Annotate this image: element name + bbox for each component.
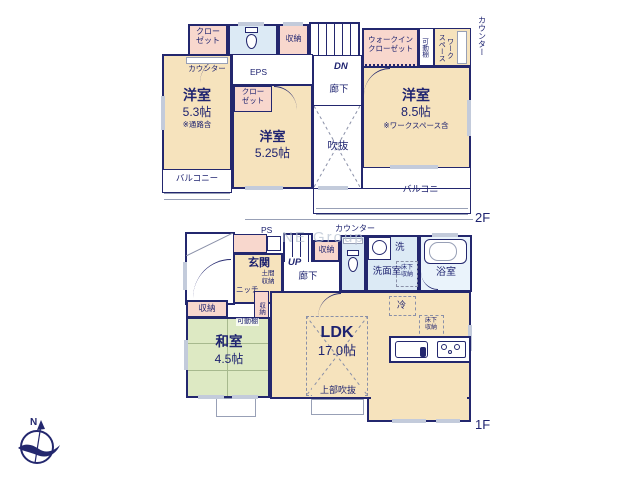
window-1f-ldk-s1 — [392, 419, 426, 423]
label-ps: PS — [261, 225, 272, 235]
label-room85-note: ※ワークスペース含 — [366, 122, 466, 131]
label-storage-west: 収納 — [188, 303, 226, 313]
bathtub-inner-icon — [429, 242, 457, 261]
label-room85-size: 8.5帖 — [372, 105, 460, 120]
label-void-2f: 吹抜 — [321, 140, 355, 152]
window-2f-storage — [283, 22, 303, 26]
ldk-seam — [371, 394, 467, 401]
label-ldk-size: 17.0帖 — [305, 343, 369, 358]
label-underfloor-wash: 床下 収納 — [397, 265, 417, 279]
window-1f-porch — [183, 262, 187, 290]
label-hallway-1f: 廊下 — [290, 271, 326, 282]
label-eps: EPS — [250, 67, 267, 77]
label-balcony-west: バルコニー — [164, 173, 230, 183]
floor-divider-line — [245, 219, 473, 220]
label-fridge: 冷 — [397, 300, 406, 311]
watermark: NE Group — [282, 229, 365, 246]
compass-north-label: N — [30, 417, 37, 428]
label-hallway-2f: 廊下 — [322, 84, 356, 95]
floorplan-canvas: クロー ゼット カウンター 収納 DN EPS 廊下 洋室 5.3帖 ※通路含 … — [0, 0, 640, 480]
label-ldk-name: LDK — [305, 324, 369, 343]
label-workspace-2f: ワーク スペース — [437, 30, 454, 66]
label-closet-525: クロー ゼット — [236, 88, 270, 106]
label-upper-void: 上部吹抜 — [312, 385, 364, 396]
label-counter-desk-2f: カウンター — [184, 65, 230, 74]
label-washer: 洗 — [395, 242, 405, 253]
compass-icon: N — [6, 412, 70, 476]
doma-storage-1f — [233, 234, 267, 253]
window-2f-525-south — [245, 186, 283, 190]
stove-burner-1 — [441, 344, 447, 350]
label-entrance: 玄関 — [238, 257, 280, 270]
toilet-icon-1f — [347, 250, 359, 256]
window-1f-washitsu-s2 — [232, 395, 258, 399]
label-washitsu-size: 4.5帖 — [202, 352, 256, 366]
window-1f-washitsu-s1 — [198, 395, 224, 399]
label-bathroom: 浴室 — [426, 267, 466, 279]
label-room85-name: 洋室 — [372, 87, 460, 104]
terrace-washitsu — [216, 398, 256, 417]
terrace-ldk — [311, 399, 364, 415]
toilet-icon-2f — [245, 27, 258, 33]
label-room525-name: 洋室 — [234, 129, 311, 144]
window-1f-bath — [432, 233, 458, 237]
window-1f-washitsu-west — [184, 340, 188, 370]
balcony-rail-west — [164, 193, 230, 200]
porch-diagonal — [186, 233, 233, 256]
label-room53-note: ※通路含 — [165, 121, 229, 130]
window-2f-toilet — [238, 22, 264, 26]
label-room525-size: 5.25帖 — [234, 146, 311, 160]
label-underfloor-kitchen: 床下 収納 — [420, 318, 442, 332]
label-closet-2f-west: クロー ゼット — [188, 27, 228, 46]
label-niche: ニッチ — [236, 286, 259, 295]
label-movable-shelf-2f: 可動棚 — [420, 31, 428, 65]
stove-burner-3 — [448, 350, 452, 354]
label-doma-storage: 土間 収納 — [254, 270, 282, 285]
washer-drum-icon — [372, 240, 387, 255]
label-room53-name: 洋室 — [165, 87, 229, 104]
balcony-rail-east — [316, 208, 468, 215]
label-washitsu-name: 和室 — [202, 334, 256, 350]
label-room53-size: 5.3帖 — [165, 105, 229, 119]
label-balcony-east: バルコニー — [390, 184, 460, 195]
desk-counter-2f — [186, 57, 228, 64]
label-stairs-up: UP — [286, 257, 303, 268]
label-storage-hall: 収納 — [314, 245, 339, 254]
label-wic-2f: ウォークイン クローゼット — [363, 36, 418, 54]
window-2f-east — [467, 100, 471, 136]
ps-shaft-1f — [267, 236, 281, 251]
label-movable-shelf-1f: 可動棚 — [236, 318, 259, 326]
kitchen-faucet-icon — [420, 347, 426, 357]
label-storage-2f-top: 収納 — [278, 34, 309, 43]
window-2f-85-south — [390, 165, 438, 169]
corridor-eps-2f — [232, 54, 313, 86]
window-1f-ldk-s2 — [436, 419, 460, 423]
label-stairs-dn: DN — [334, 61, 348, 72]
label-floor-2f: 2F — [475, 210, 490, 225]
label-floor-1f: 1F — [475, 417, 490, 432]
stove-burner-2 — [454, 344, 460, 350]
tatami-line-h2 — [188, 370, 268, 371]
label-counter-right-2f: カウンター — [477, 10, 486, 62]
workspace-counter-2f — [457, 31, 467, 64]
